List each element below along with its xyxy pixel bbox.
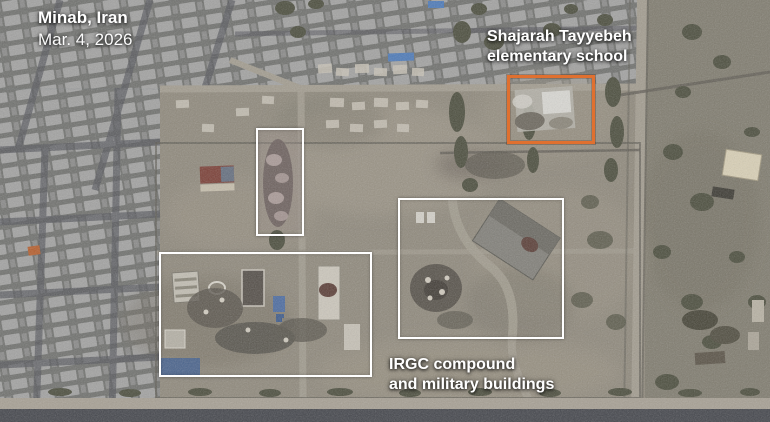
school-label-line2: elementary school (487, 47, 632, 67)
strike-highlight-box-north (256, 128, 304, 236)
school-label-line1: Shajarah Tayyebeh (487, 27, 632, 47)
irgc-label: IRGC compound and military buildings (389, 355, 554, 395)
annotated-satellite-graphic: Minab, Iran Mar. 4, 2026 Shajarah Tayyeb… (0, 0, 770, 422)
school-label: Shajarah Tayyebeh elementary school (487, 27, 632, 67)
school-highlight-box (507, 75, 595, 144)
strike-highlight-box-southwest (159, 252, 372, 377)
satellite-basemap (0, 0, 770, 422)
location-title: Minab, Iran (38, 7, 133, 29)
grain-texture (0, 0, 770, 422)
irgc-label-line1: IRGC compound (389, 355, 554, 375)
location-date-label: Minab, Iran Mar. 4, 2026 (38, 7, 133, 51)
irgc-label-line2: and military buildings (389, 375, 554, 395)
capture-date: Mar. 4, 2026 (38, 29, 133, 51)
strike-highlight-box-east (398, 198, 564, 339)
